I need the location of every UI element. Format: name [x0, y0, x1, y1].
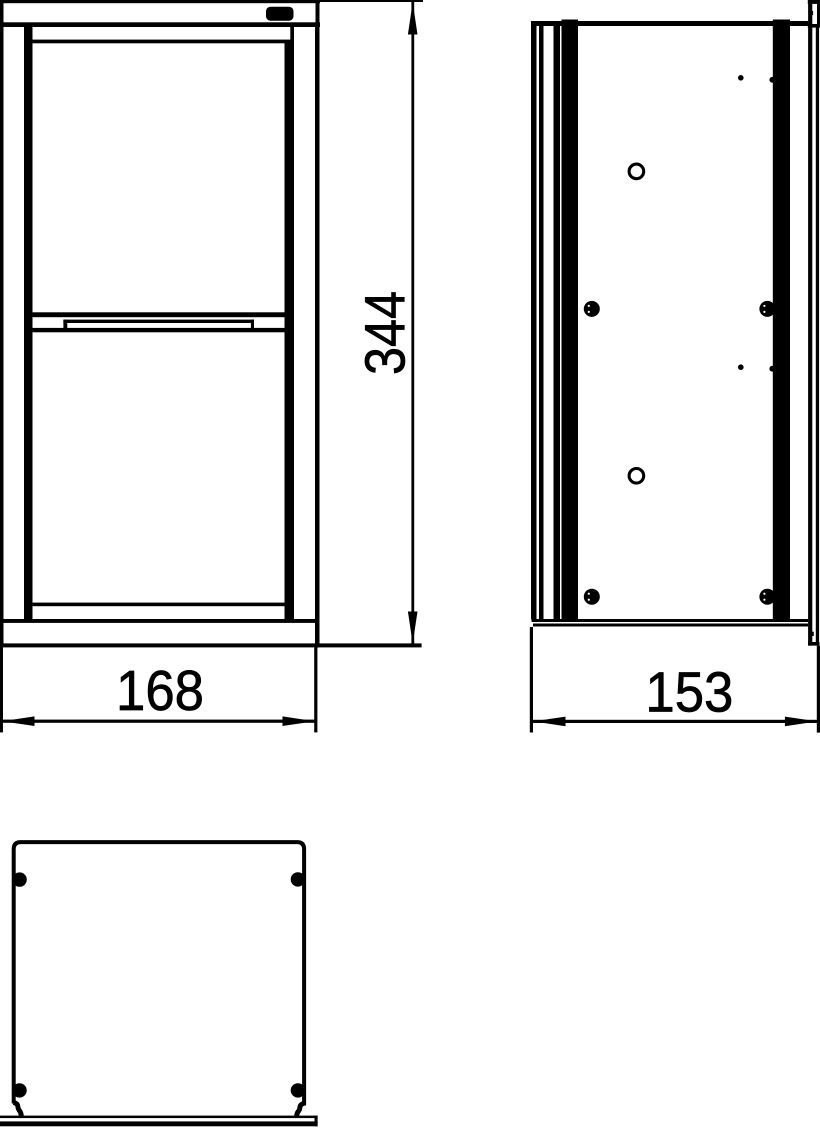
svg-text:168: 168: [116, 659, 204, 723]
svg-text:153: 153: [645, 661, 733, 725]
svg-text:344: 344: [354, 291, 418, 375]
